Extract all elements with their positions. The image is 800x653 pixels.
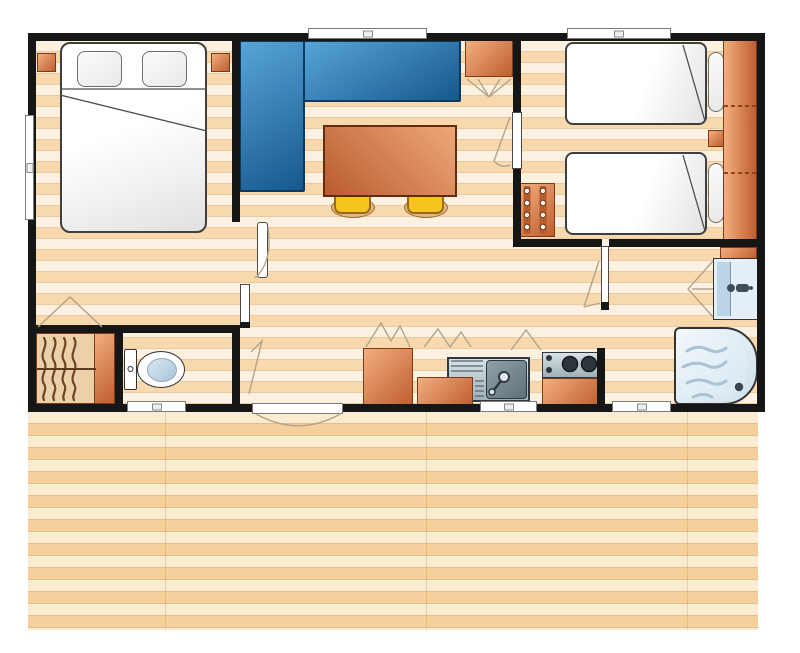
door-stop (240, 322, 250, 328)
corner-sofa-side (239, 40, 305, 192)
door-leaf-wc (240, 284, 250, 327)
window-interior-pass (512, 112, 522, 169)
pillow (708, 163, 724, 223)
terrace-deck (28, 412, 758, 630)
wall-master-living (232, 40, 240, 222)
shower-tray (674, 327, 758, 405)
wall-closet-wc (115, 333, 123, 404)
sink-bowl (486, 360, 527, 399)
fridge (363, 348, 413, 406)
wall-living-twin-lower (513, 167, 521, 247)
wall-living-twin-upper (513, 40, 521, 115)
window-living-top (308, 28, 427, 39)
nightstand-right (211, 53, 230, 72)
window-twin-top (567, 28, 671, 39)
door-stop (601, 302, 609, 310)
toilet-cistern (124, 349, 137, 390)
hanging-closet (36, 333, 96, 404)
floor-plan (0, 0, 800, 653)
double-bed (60, 42, 207, 233)
dining-table (323, 125, 457, 197)
hob (542, 352, 600, 378)
single-bed-1 (565, 42, 707, 125)
closet-shelf (94, 333, 115, 404)
drawer-unit (518, 183, 555, 237)
pillow (142, 51, 187, 87)
washbasin-panel (717, 262, 731, 316)
window-master-left (25, 115, 34, 220)
single-bed-2 (565, 152, 707, 235)
door-leaf-master (257, 222, 268, 278)
storage-cabinet (465, 40, 513, 77)
wall-master-wc (36, 325, 240, 333)
toilet-bowl-inner (147, 358, 177, 382)
wall-wc-right (232, 327, 240, 412)
window-corridor-bottom (612, 401, 671, 412)
window-kitchen-bottom (480, 401, 537, 412)
wall-twin-bottom-left (513, 239, 602, 247)
nightstand-between-beds (708, 130, 724, 147)
nightstand-left (37, 53, 56, 72)
kitchen-counter-left (417, 377, 473, 406)
corner-sofa-back (303, 40, 461, 102)
washbasin (713, 258, 758, 320)
pillow (708, 52, 724, 112)
wall-twin-bottom-right (609, 239, 765, 247)
door-leaf-twin (601, 246, 609, 306)
entrance-door (252, 403, 343, 414)
wardrobe (723, 40, 757, 240)
kitchen-counter-right (542, 378, 602, 406)
shower-tray-inner (683, 335, 747, 397)
wall-kitchen-stub (597, 348, 605, 412)
pillow (77, 51, 122, 87)
window-wc-bottom (127, 401, 186, 412)
